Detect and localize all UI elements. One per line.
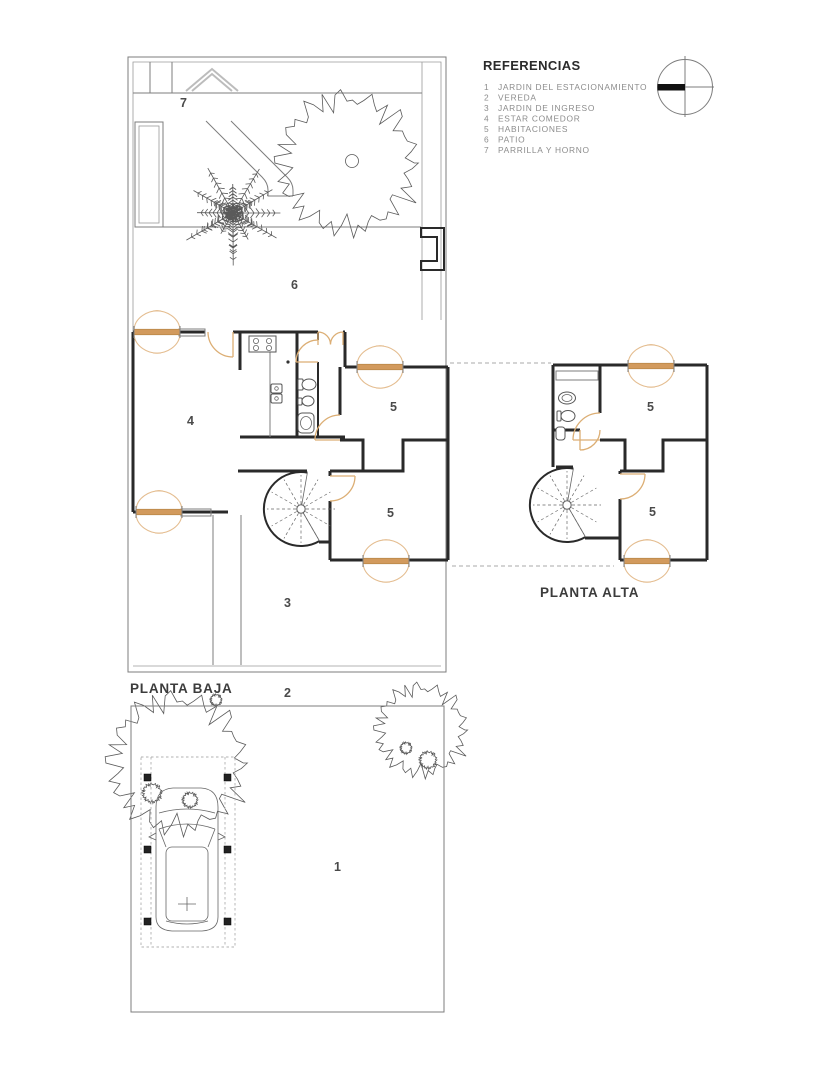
toilet-icon [557,411,575,422]
window-symbol [134,311,180,353]
washbasin-icon [559,392,576,404]
tree-trunk-icon [346,155,359,168]
legend-item-num: 6 [484,135,489,145]
upper-plan-title: PLANTA ALTA [540,585,639,600]
carport-outline [141,757,235,947]
tree-icon [105,691,247,837]
room-label-habitacion-alta: 5 [647,400,655,414]
projection-lines [450,363,614,566]
wall-niche [421,228,444,270]
legend-item-label: JARDIN DE INGRESO [498,103,595,113]
legend-item-label: JARDIN DEL ESTACIONAMIENTO [498,82,647,92]
bidet-icon [298,396,314,406]
car-icon [149,788,225,931]
upper-floor-plan [530,345,707,582]
legend-item-num: 5 [484,124,489,134]
stove-icon [249,336,276,352]
floor-plan-page: REFERENCIAS 1 JARDIN DEL ESTACIONAMIENTO… [0,0,819,1080]
window-symbol [363,540,409,582]
room-label-jardin-estacionamiento: 1 [334,860,342,874]
legend: REFERENCIAS 1 JARDIN DEL ESTACIONAMIENTO… [483,58,647,155]
room-label-jardin-ingreso: 3 [284,596,292,610]
room-label-patio: 6 [291,278,299,292]
entry-double-door-icon [318,332,343,345]
toilet-icon [298,379,316,390]
house-ground-floor [133,311,448,582]
room-label-habitacion: 5 [387,506,395,520]
spiral-stair-icon [264,472,335,546]
window-symbol [136,491,182,533]
door-swing-icon [296,340,318,362]
door-swing-icon [573,413,600,440]
carport-pilaster-lines [151,757,225,947]
legend-item-num: 7 [484,145,489,155]
legend-item-label: HABITACIONES [498,124,568,134]
parrilla-counter [133,62,422,93]
washbasin-icon [298,413,314,433]
ground-plan-title: PLANTA BAJA [130,681,233,696]
bath-counter [556,371,598,380]
bidet-icon [556,427,565,440]
spiral-stair-icon [530,468,601,542]
tree-tuft-icon [182,792,198,808]
entry-walkway [213,515,241,665]
door-swing-icon [330,476,355,501]
tree-tuft-icon [400,742,412,754]
door-knob-dot [286,360,289,363]
legend-item-label: ESTAR COMEDOR [498,114,580,124]
room-label-estar: 4 [187,414,195,428]
parking-boundary [131,706,444,1012]
legend-title: REFERENCIAS [483,58,581,73]
room-label-vereda: 2 [284,686,292,700]
legend-item-num: 4 [484,114,489,124]
window-symbol [357,346,403,388]
kitchen-sink-icon [271,384,282,403]
legend-item-label: VEREDA [498,93,537,103]
room-label-parrilla: 7 [180,96,188,110]
door-swing-icon [620,474,645,499]
room-label-habitacion: 5 [390,400,398,414]
legend-item-num: 1 [484,82,489,92]
floor-plan-canvas: REFERENCIAS 1 JARDIN DEL ESTACIONAMIENTO… [0,0,819,1080]
legend-item-label: PATIO [498,135,525,145]
legend-item-num: 2 [484,93,489,103]
tree-tuft-icon [142,783,162,804]
upper-walls [553,365,707,560]
legend-item-label: PARRILLA Y HORNO [498,145,590,155]
room-label-habitacion-alta: 5 [649,505,657,519]
north-indicator-icon [657,56,714,117]
window-symbol [628,345,674,387]
legend-item-num: 3 [484,103,489,113]
vegetation [105,90,467,837]
door-swing-icon [208,332,233,357]
planter-inner [139,126,159,223]
parrilla-roof-icon [186,69,238,91]
window-symbol [624,540,670,582]
parking-garden [131,706,444,1012]
